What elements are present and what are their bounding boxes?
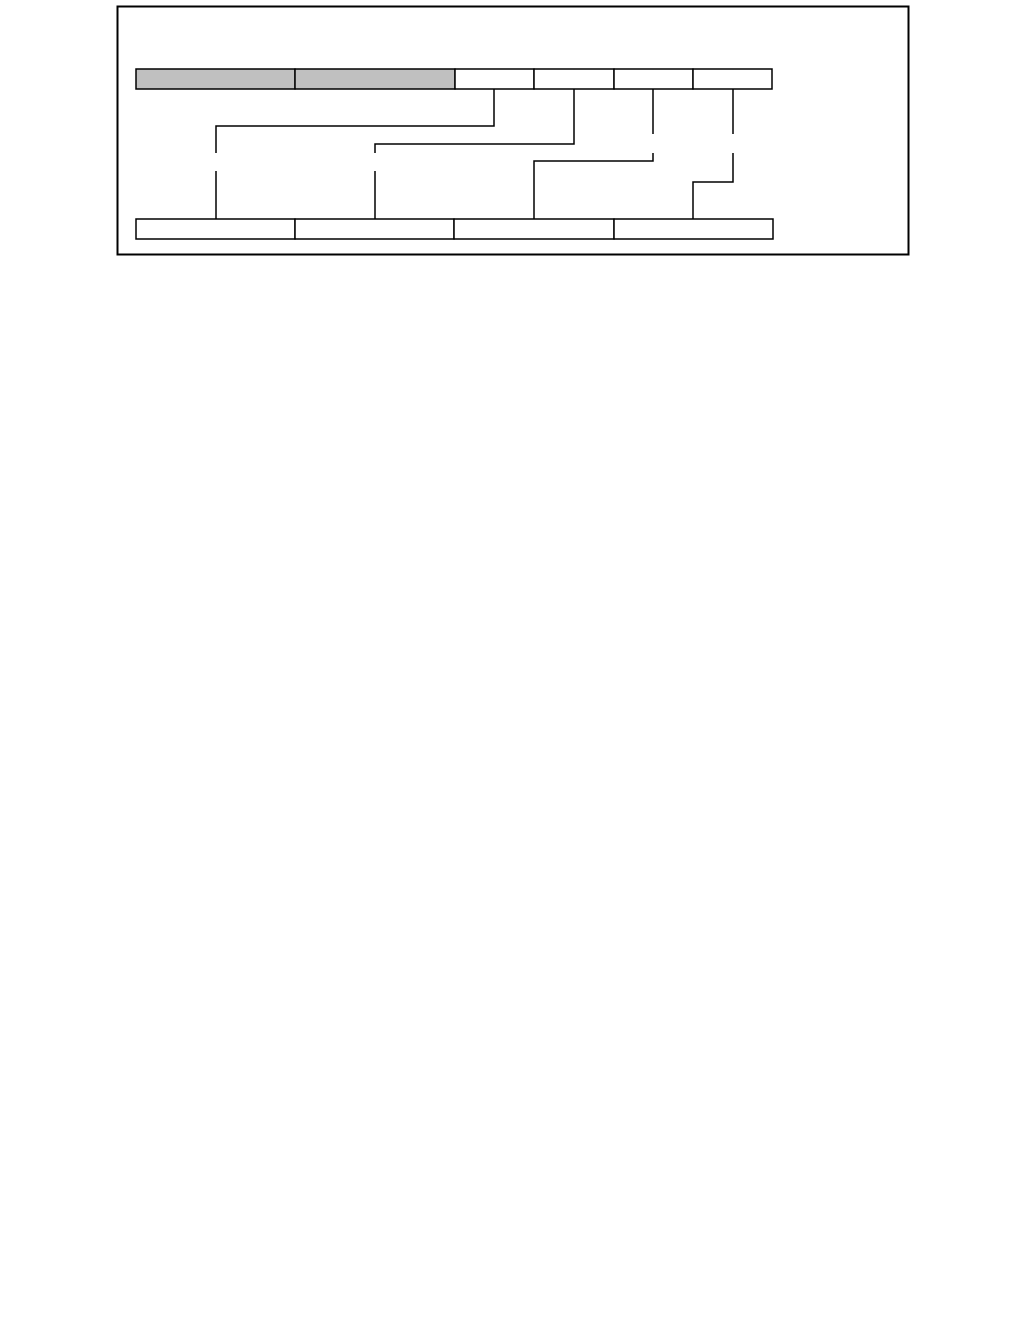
bottom-row-cell-4 — [614, 219, 773, 239]
figure-frame — [118, 7, 909, 255]
top-row-cell-3 — [455, 69, 534, 89]
top-row-cell-5 — [614, 69, 693, 89]
top-row-cell-2 — [295, 69, 455, 89]
top-row-cell-6 — [693, 69, 772, 89]
bottom-row-cell-3 — [454, 219, 614, 239]
bottom-row-cell-2 — [295, 219, 454, 239]
field-mapping-diagram — [0, 0, 1029, 1343]
top-row-cell-4 — [534, 69, 614, 89]
top-row-cell-1 — [136, 69, 295, 89]
bottom-row-cell-1 — [136, 219, 295, 239]
document-page — [0, 0, 1029, 1343]
